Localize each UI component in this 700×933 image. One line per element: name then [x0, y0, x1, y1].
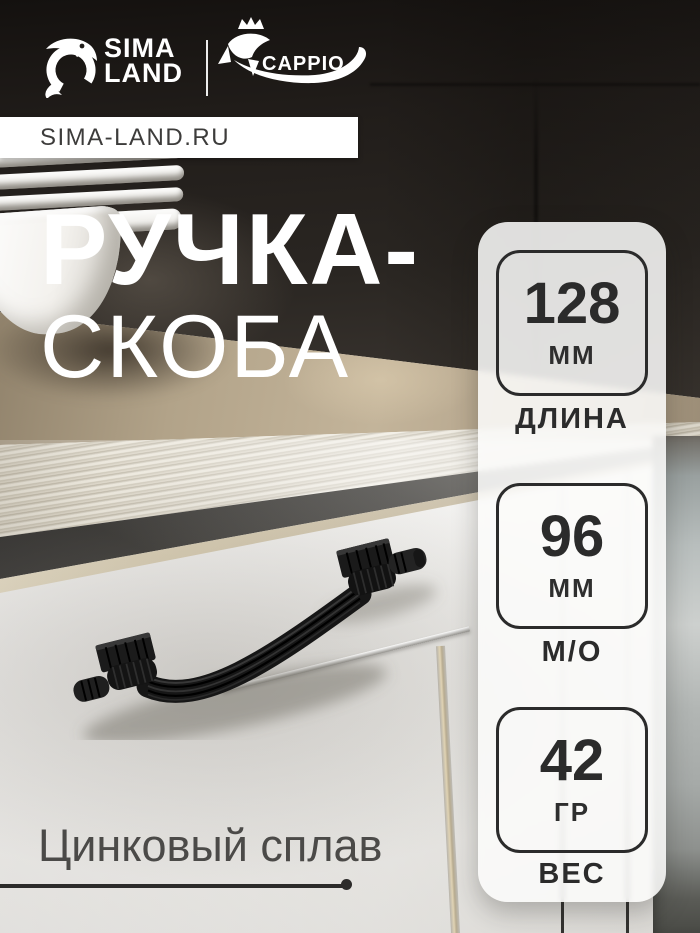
spec-weight-label: ВЕС — [478, 858, 666, 891]
spec-box-length: 128 ММ — [496, 250, 648, 396]
material-underline-dot — [341, 879, 352, 890]
spec-weight-value: 42 — [540, 732, 605, 790]
sima-logo-line2: LAND — [104, 58, 183, 88]
spec-hole-spacing-unit: ММ — [548, 573, 595, 604]
product-title: РУЧКА- СКОБА — [40, 196, 420, 394]
material-underline — [0, 884, 346, 888]
dolphin-icon — [38, 34, 102, 98]
cappio-logo-text: CAPPIO — [262, 53, 345, 76]
spec-hole-spacing-label: М/О — [478, 636, 666, 669]
plate — [0, 165, 184, 190]
brand-header: SIMA LAND CAPPIO SIMA-LAND.RU — [0, 0, 700, 160]
sima-land-logo: SIMA LAND — [104, 36, 183, 86]
product-title-line1: РУЧКА- — [40, 196, 420, 304]
spec-weight-unit: ГР — [554, 797, 590, 828]
website-url: SIMA-LAND.RU — [0, 117, 358, 158]
website-banner: SIMA-LAND.RU — [0, 117, 358, 158]
product-title-line2: СКОБА — [40, 298, 420, 394]
material-text: Цинковый сплав — [38, 820, 420, 872]
product-card: SIMA LAND CAPPIO SIMA-LAND.RU РУЧКА- СКО… — [0, 0, 700, 933]
spec-box-hole-spacing: 96 ММ — [496, 483, 648, 629]
product-handle-photo — [50, 510, 450, 740]
spec-box-weight: 42 ГР — [496, 707, 648, 853]
spec-length-value: 128 — [524, 275, 621, 333]
spec-length-label: ДЛИНА — [478, 403, 666, 436]
spec-hole-spacing-value: 96 — [540, 508, 605, 566]
cappio-logo: CAPPIO — [218, 16, 378, 100]
crown-icon — [238, 17, 264, 29]
specs-panel: 128 ММ ДЛИНА 96 ММ М/О 42 ГР ВЕС — [478, 222, 666, 902]
material-caption: Цинковый сплав — [0, 820, 420, 872]
logo-divider — [206, 40, 208, 96]
spec-length-unit: ММ — [548, 340, 595, 371]
